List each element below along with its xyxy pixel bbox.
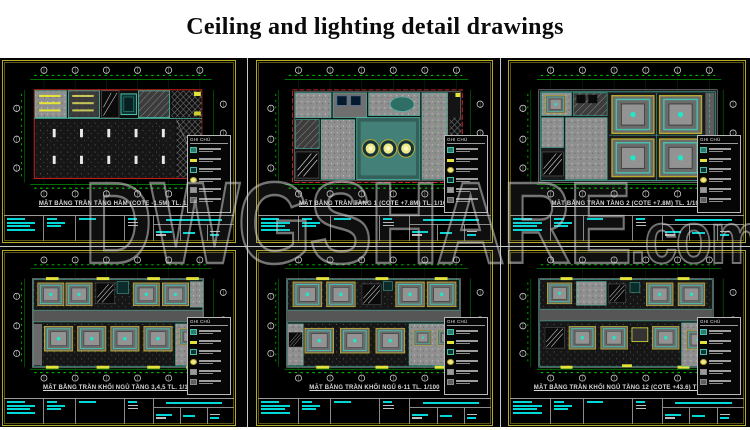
panel-separator bbox=[500, 58, 501, 427]
teal-swatch-icon bbox=[447, 329, 454, 335]
legend-box: GHI CHÚ bbox=[187, 317, 231, 395]
legend-item bbox=[190, 155, 228, 165]
legend-box: GHI CHÚ bbox=[444, 135, 488, 213]
legend-item bbox=[190, 337, 228, 347]
dark-gray-swatch-icon bbox=[190, 197, 197, 203]
legend-title: GHI CHÚ bbox=[190, 319, 228, 326]
dark-gray-swatch-icon bbox=[447, 197, 454, 203]
legend-item bbox=[700, 337, 738, 347]
legend-item bbox=[700, 195, 738, 205]
panel-sheet-floor12: MẶT BẰNG TRẦN KHỐI NGỦ TẦNG 12 (COTE +43… bbox=[508, 250, 746, 426]
legend-item bbox=[700, 357, 738, 367]
legend-title: GHI CHÚ bbox=[700, 137, 738, 144]
yellow-bar-swatch-icon bbox=[700, 341, 707, 344]
legend-box: GHI CHÚ bbox=[697, 317, 741, 395]
legend-item bbox=[447, 327, 485, 337]
dark-gray-swatch-icon bbox=[700, 197, 707, 203]
legend-item bbox=[447, 357, 485, 367]
legend-item bbox=[447, 145, 485, 155]
dark-teal-swatch-icon bbox=[447, 177, 454, 183]
legend-box: GHI CHÚ bbox=[697, 135, 741, 213]
round-light-swatch-icon bbox=[190, 177, 197, 183]
legend-item bbox=[700, 155, 738, 165]
legend-item bbox=[190, 327, 228, 337]
legend-item bbox=[190, 195, 228, 205]
dark-teal-swatch-icon bbox=[190, 167, 197, 173]
legend-item bbox=[700, 347, 738, 357]
gray-swatch-icon bbox=[190, 369, 197, 375]
title-block bbox=[4, 398, 234, 424]
legend-item bbox=[190, 185, 228, 195]
legend-item bbox=[700, 367, 738, 377]
chandelier-icon bbox=[362, 140, 414, 158]
yellow-bar-swatch-icon bbox=[190, 159, 197, 162]
dark-teal-swatch-icon bbox=[700, 167, 707, 173]
legend-item bbox=[447, 155, 485, 165]
panel-sheet-floor6-11: MẶT BẰNG TRẦN KHỐI NGỦ 6-11 TL. 1/100 GH… bbox=[256, 250, 493, 426]
round-light-swatch-icon bbox=[700, 359, 707, 365]
legend-item bbox=[447, 175, 485, 185]
gray-swatch-icon bbox=[447, 187, 454, 193]
panel-sheet-basement: MẶT BẰNG TRẦN TẦNG HẦM (COTE -1.5M) TL. … bbox=[2, 60, 236, 243]
legend-item bbox=[447, 367, 485, 377]
title-block bbox=[258, 398, 491, 424]
legend-item bbox=[447, 337, 485, 347]
legend-item bbox=[447, 377, 485, 387]
teal-swatch-icon bbox=[190, 329, 197, 335]
teal-swatch-icon bbox=[700, 147, 707, 153]
legend-item bbox=[447, 195, 485, 205]
page: Ceiling and lighting detail drawings bbox=[0, 0, 750, 430]
dark-gray-swatch-icon bbox=[447, 379, 454, 385]
legend-item bbox=[190, 165, 228, 175]
legend-item bbox=[190, 377, 228, 387]
dark-gray-swatch-icon bbox=[700, 379, 707, 385]
teal-swatch-icon bbox=[700, 329, 707, 335]
legend-box: GHI CHÚ bbox=[187, 135, 231, 213]
legend-item bbox=[700, 377, 738, 387]
legend-item bbox=[700, 327, 738, 337]
gray-swatch-icon bbox=[190, 187, 197, 193]
legend-item bbox=[447, 185, 485, 195]
panel-separator bbox=[247, 58, 248, 427]
dark-teal-swatch-icon bbox=[700, 349, 707, 355]
title-block bbox=[258, 215, 491, 241]
page-title: Ceiling and lighting detail drawings bbox=[0, 14, 750, 41]
yellow-bar-swatch-icon bbox=[447, 341, 454, 344]
legend-title: GHI CHÚ bbox=[700, 319, 738, 326]
legend-item bbox=[447, 347, 485, 357]
legend-item bbox=[700, 165, 738, 175]
legend-item bbox=[700, 145, 738, 155]
header: Ceiling and lighting detail drawings bbox=[0, 0, 750, 58]
panel-sheet-level1: MẶT BẰNG TRẦN TẦNG 1 (COTE +7.8M) TL. 1/… bbox=[256, 60, 493, 243]
drawing-collage: MẶT BẰNG TRẦN TẦNG HẦM (COTE -1.5M) TL. … bbox=[0, 58, 750, 430]
panel-separator bbox=[0, 246, 750, 247]
teal-swatch-icon bbox=[190, 147, 197, 153]
yellow-bar-swatch-icon bbox=[190, 341, 197, 344]
legend-item bbox=[190, 367, 228, 377]
gray-swatch-icon bbox=[700, 187, 707, 193]
gray-swatch-icon bbox=[700, 369, 707, 375]
round-light-swatch-icon bbox=[447, 359, 454, 365]
legend-title: GHI CHÚ bbox=[447, 319, 485, 326]
dark-teal-swatch-icon bbox=[447, 349, 454, 355]
dark-teal-swatch-icon bbox=[190, 349, 197, 355]
title-block bbox=[510, 215, 744, 241]
round-light-swatch-icon bbox=[447, 167, 454, 173]
yellow-bar-swatch-icon bbox=[447, 159, 454, 162]
dark-gray-swatch-icon bbox=[190, 379, 197, 385]
legend-item bbox=[700, 175, 738, 185]
panel-sheet-floor345: MẶT BẰNG TRẦN KHỐI NGỦ TẦNG 3,4,5 TL. 1/… bbox=[2, 250, 236, 426]
title-block bbox=[510, 398, 744, 424]
legend-title: GHI CHÚ bbox=[447, 137, 485, 144]
legend-item bbox=[447, 165, 485, 175]
yellow-bar-swatch-icon bbox=[700, 159, 707, 162]
title-block bbox=[4, 215, 234, 241]
legend-item bbox=[190, 145, 228, 155]
legend-box: GHI CHÚ bbox=[444, 317, 488, 395]
legend-item bbox=[190, 357, 228, 367]
legend-item bbox=[190, 175, 228, 185]
legend-item bbox=[700, 185, 738, 195]
legend-title: GHI CHÚ bbox=[190, 137, 228, 144]
gray-swatch-icon bbox=[447, 369, 454, 375]
teal-swatch-icon bbox=[447, 147, 454, 153]
panel-sheet-level2: MẶT BẰNG TRẦN TẦNG 2 (COTE +7.8M) TL. 1/… bbox=[508, 60, 746, 243]
round-light-swatch-icon bbox=[190, 359, 197, 365]
legend-item bbox=[190, 347, 228, 357]
round-light-swatch-icon bbox=[700, 177, 707, 183]
